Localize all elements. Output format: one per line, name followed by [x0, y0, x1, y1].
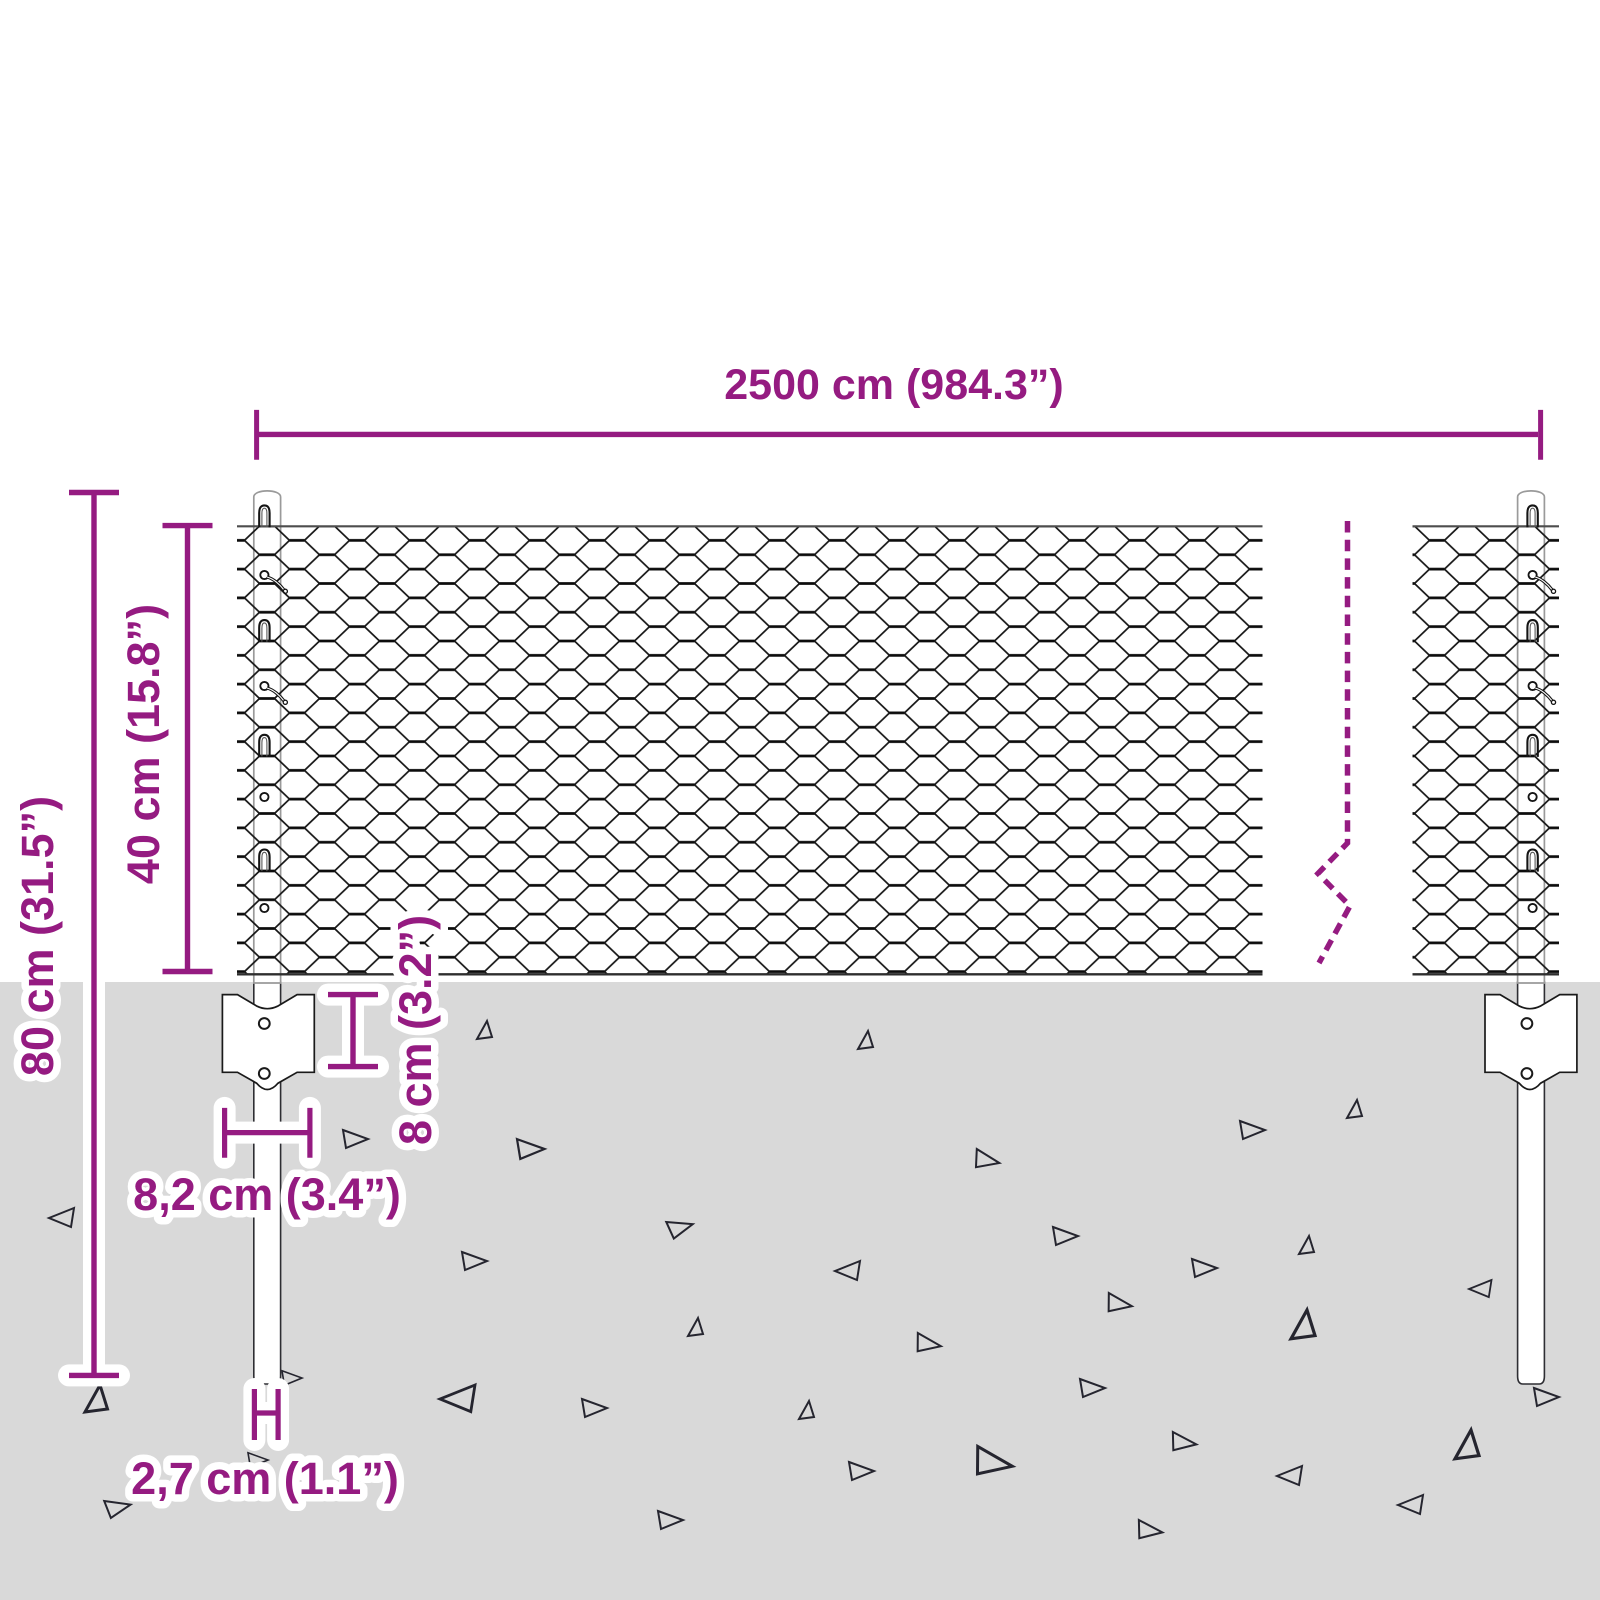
svg-text:2,7 cm (1.1”): 2,7 cm (1.1”): [131, 1453, 399, 1504]
svg-text:40 cm (15.8”): 40 cm (15.8”): [118, 604, 169, 884]
svg-text:8,2 cm (3.4”): 8,2 cm (3.4”): [133, 1169, 401, 1220]
svg-text:2500 cm (984.3”): 2500 cm (984.3”): [724, 361, 1063, 409]
svg-text:80 cm (31.5”): 80 cm (31.5”): [12, 796, 63, 1076]
svg-text:8 cm (3.2”): 8 cm (3.2”): [390, 915, 441, 1145]
